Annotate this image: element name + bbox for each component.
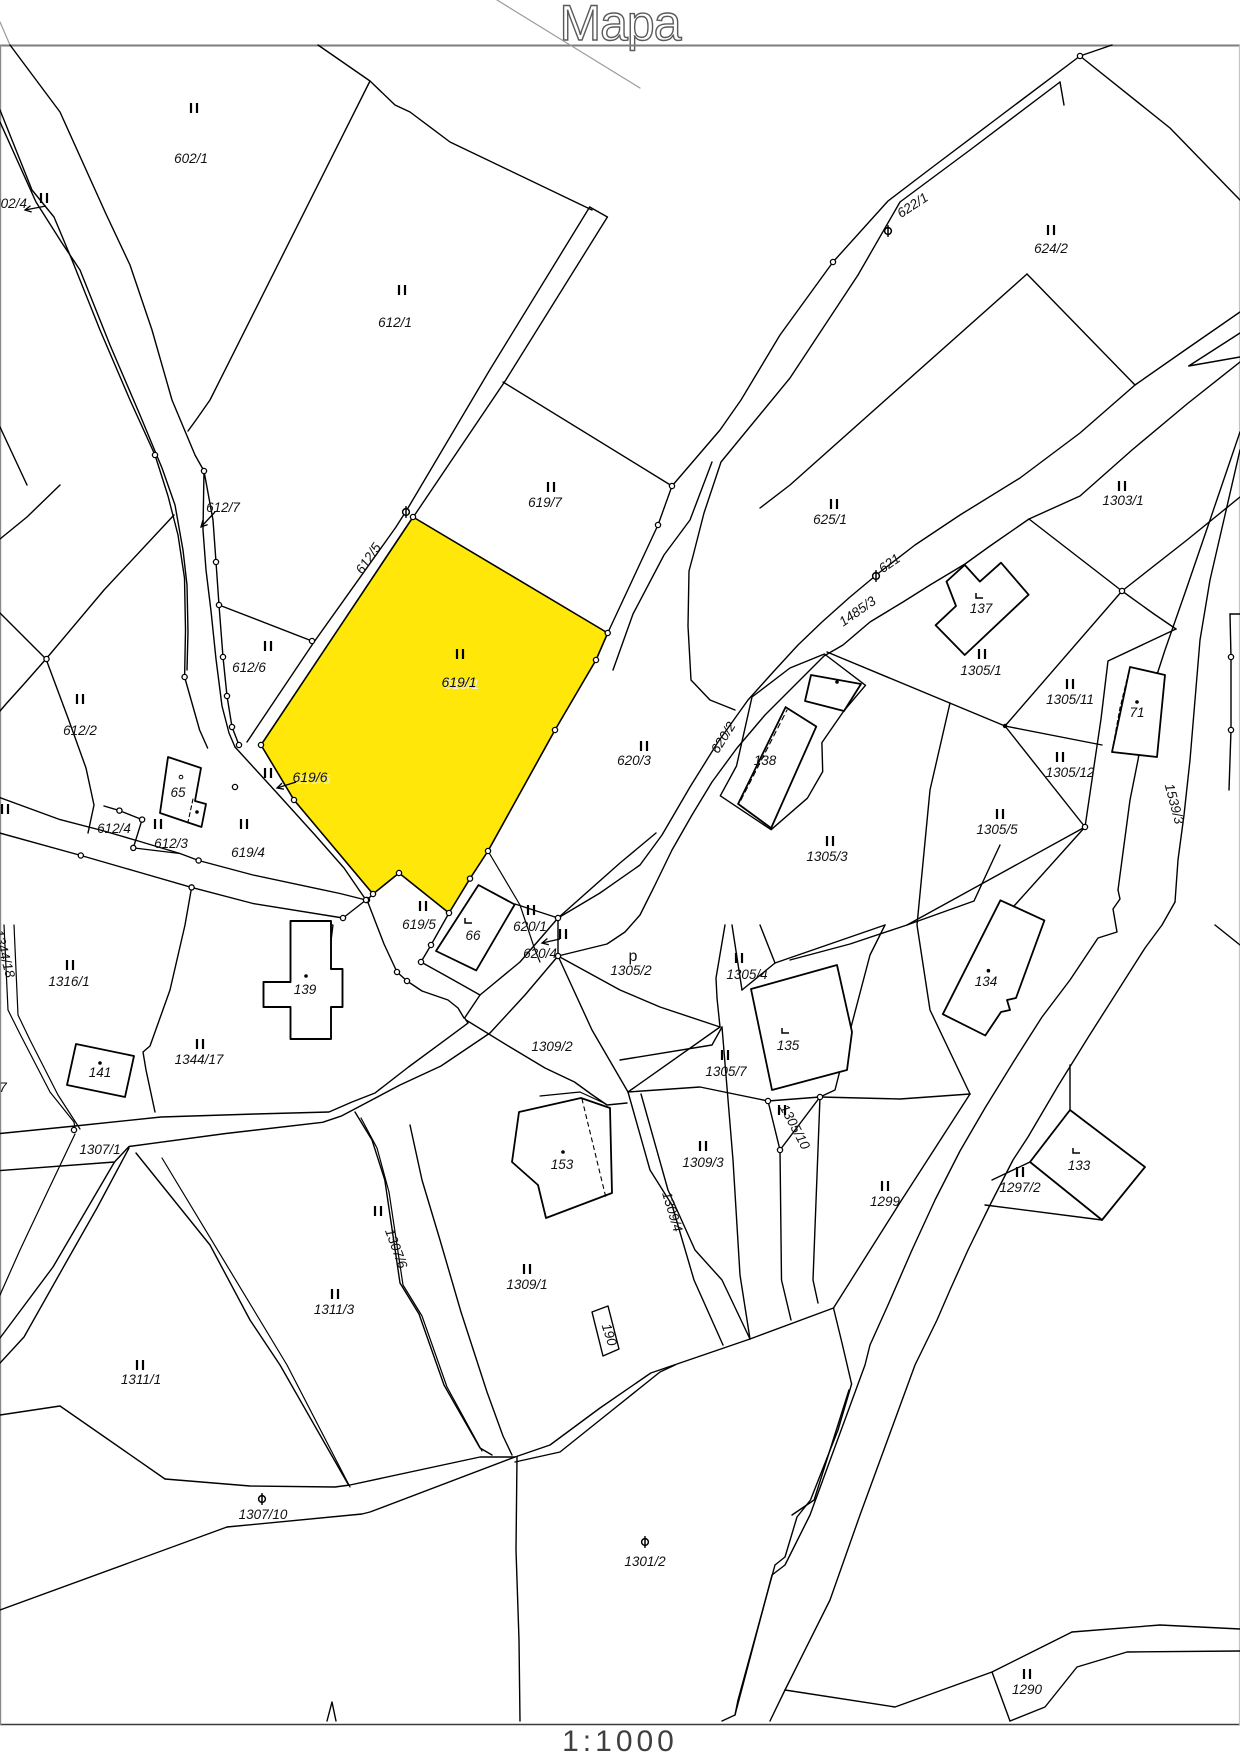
svg-text:1309/2: 1309/2: [531, 1039, 573, 1054]
svg-text:153: 153: [551, 1157, 574, 1172]
svg-text:141: 141: [89, 1065, 112, 1080]
svg-text:612/7: 612/7: [206, 500, 240, 515]
svg-text:1305/5: 1305/5: [976, 822, 1018, 837]
svg-text:Mapa: Mapa: [559, 0, 681, 51]
svg-text:71: 71: [1129, 705, 1144, 720]
svg-text:620/3: 620/3: [617, 753, 651, 768]
svg-text:1311/1: 1311/1: [121, 1372, 161, 1387]
svg-text:138: 138: [754, 753, 777, 768]
svg-text:620/4: 620/4: [523, 946, 557, 961]
svg-text:620/1: 620/1: [513, 919, 547, 934]
svg-text:624/2: 624/2: [1034, 241, 1068, 256]
svg-text:1299: 1299: [870, 1194, 901, 1209]
svg-text:1309/3: 1309/3: [682, 1155, 724, 1170]
svg-text:65: 65: [170, 785, 186, 800]
svg-text:66: 66: [465, 928, 481, 943]
svg-text:1305/3: 1305/3: [806, 849, 848, 864]
svg-text:1311/3: 1311/3: [314, 1302, 355, 1317]
svg-text:139: 139: [294, 982, 317, 997]
svg-text:625/1: 625/1: [813, 512, 847, 527]
svg-text:1316/1: 1316/1: [48, 974, 89, 989]
svg-text:619/1: 619/1: [441, 674, 476, 690]
svg-text:612/3: 612/3: [154, 836, 188, 851]
svg-text:1305/4: 1305/4: [726, 967, 767, 982]
svg-text:612/2: 612/2: [63, 723, 97, 738]
svg-text:1309/1: 1309/1: [506, 1277, 547, 1292]
svg-text:602/1: 602/1: [174, 151, 208, 166]
svg-text:602/4: 602/4: [0, 196, 27, 211]
svg-text:135: 135: [777, 1038, 800, 1053]
svg-text:1305/12: 1305/12: [1046, 765, 1095, 780]
svg-text:7: 7: [0, 1080, 7, 1095]
svg-text:1290: 1290: [1012, 1682, 1043, 1697]
svg-text:1297/2: 1297/2: [999, 1180, 1041, 1195]
svg-text:619/7: 619/7: [528, 495, 562, 510]
svg-text:134: 134: [975, 974, 998, 989]
svg-text:1305/2: 1305/2: [610, 963, 652, 978]
svg-text:619/4: 619/4: [231, 845, 265, 860]
svg-text:619/6: 619/6: [292, 769, 327, 785]
svg-text:1:1000: 1:1000: [562, 1725, 678, 1754]
svg-text:619/5: 619/5: [402, 917, 436, 932]
svg-text:133: 133: [1068, 1158, 1091, 1173]
svg-text:1305/1: 1305/1: [960, 663, 1001, 678]
svg-text:p: p: [629, 948, 638, 965]
svg-text:1301/2: 1301/2: [624, 1554, 666, 1569]
svg-text:1344/17: 1344/17: [175, 1052, 224, 1067]
svg-text:1305/7: 1305/7: [705, 1064, 747, 1079]
svg-text:1307/10: 1307/10: [239, 1507, 288, 1522]
svg-text:1305/11: 1305/11: [1046, 692, 1094, 707]
svg-text:137: 137: [970, 601, 993, 616]
svg-text:1307/1: 1307/1: [79, 1142, 120, 1157]
svg-text:612/1: 612/1: [378, 315, 412, 330]
svg-text:612/6: 612/6: [232, 660, 266, 675]
svg-text:612/4: 612/4: [97, 821, 131, 836]
svg-text:1303/1: 1303/1: [1102, 493, 1143, 508]
